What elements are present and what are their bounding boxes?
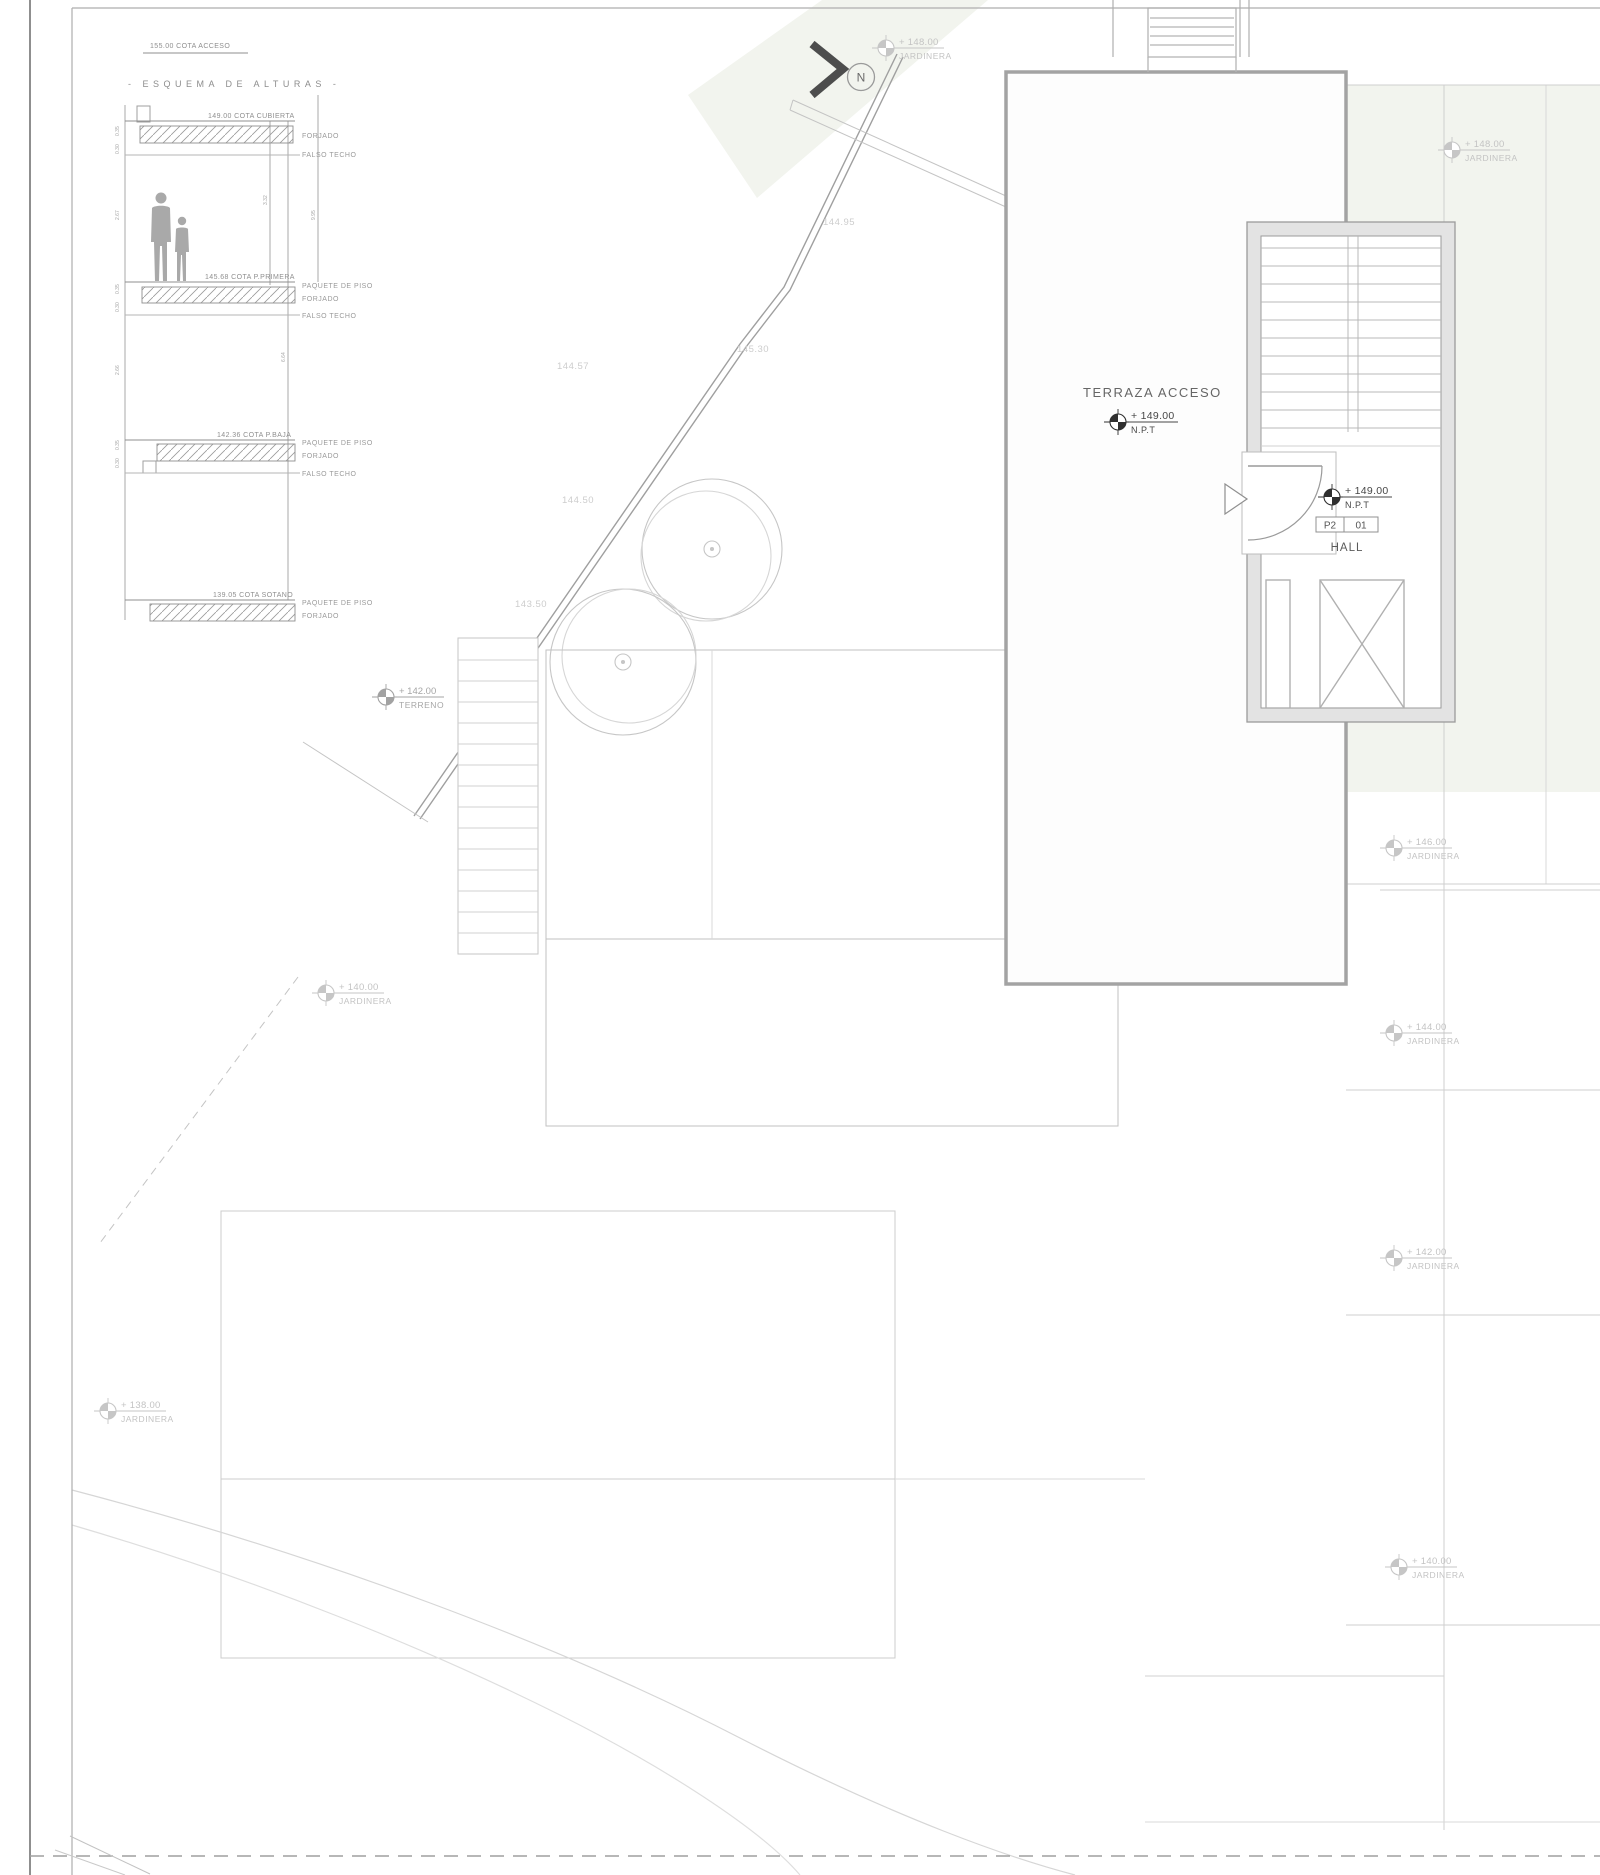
cota-acceso-label: 155.00 COTA ACCESO [150,43,230,50]
contour-label: 144.95 [823,217,855,228]
dim: 2.67 [115,210,121,220]
slab-hatch [150,604,295,621]
jardinera-label: JARDINERA [339,996,392,1006]
jardinera-label: JARDINERA [1407,1036,1460,1046]
dim: 0.35 [115,126,121,136]
room-tag-zone: P2 [1324,521,1337,532]
jardinera-value: + 144.00 [1407,1022,1447,1033]
tag-forjado: FORJADO [302,453,339,460]
jardinera-label: JARDINERA [1465,153,1518,163]
jardinera-value: + 140.00 [339,982,379,993]
jardinera-marker-3: + 146.00 JARDINERA [1380,835,1460,861]
dim: 0.30 [115,458,121,468]
contour-label: 145.30 [737,344,769,355]
slab-notch [143,461,156,473]
terreno-value: + 142.00 [399,686,436,697]
contour-labels: 144.95 145.30 144.57 144.50 143.50 [515,217,855,610]
npt-value: + 149.00 [1131,410,1175,422]
dim: 0.30 [115,144,121,154]
north-entry-stair [1113,0,1249,72]
jardinera-value: + 140.00 [1412,1556,1452,1567]
jardinera-marker-7: + 140.00 JARDINERA [312,980,392,1006]
jardinera-marker-5: + 142.00 JARDINERA [1380,1245,1460,1271]
npt-value: + 149.00 [1345,485,1389,497]
north-label: N [857,71,866,85]
dim: 3.32 [263,195,269,205]
slab-hatch [142,287,295,303]
tag-paquete: PAQUETE DE PISO [302,283,373,290]
jardinera-value: + 138.00 [121,1400,161,1411]
tree-symbols [550,479,782,735]
jardinera-label: JARDINERA [899,51,952,61]
npt-datum: N.P.T [1131,425,1155,435]
room-tag-number: 01 [1355,521,1367,532]
lower-building-outline [221,1211,1444,1676]
jardinera-value: + 148.00 [1465,139,1505,150]
tag-falso-techo: FALSO TECHO [302,152,356,159]
jardinera-marker-4: + 144.00 JARDINERA [1380,1020,1460,1046]
tag-paquete: PAQUETE DE PISO [302,440,373,447]
jardinera-marker-8: + 138.00 JARDINERA [94,1398,174,1424]
architectural-plan-sheet: 144.95 145.30 144.57 144.50 143.50 [0,0,1600,1875]
cota-cubierta: 149.00 COTA CUBIERTA [208,113,295,120]
terrain-contour-curves [72,1490,1075,1875]
room-name-label: HALL [1331,542,1364,554]
tag-falso-techo: FALSO TECHO [302,471,356,478]
slab-hatch [157,444,295,461]
npt-datum: N.P.T [1345,500,1369,510]
dim: 6.64 [281,352,287,362]
jardinera-marker-6: + 140.00 JARDINERA [1385,1554,1465,1580]
cota-primera: 145.68 COTA P.PRIMERA [205,274,295,281]
tag-forjado: FORJADO [302,133,339,140]
jardinera-label: JARDINERA [121,1414,174,1424]
esquema-vertical-lines [125,95,318,620]
tag-falso-techo: FALSO TECHO [302,313,356,320]
stair-core [1225,222,1455,722]
jardinera-label: JARDINERA [1407,1261,1460,1271]
cota-sotano: 139.05 COTA SOTANO [213,592,293,599]
jardinera-value: + 148.00 [899,37,939,48]
jardinera-label: JARDINERA [1412,1570,1465,1580]
tag-paquete: PAQUETE DE PISO [302,600,373,607]
jardinera-value: + 146.00 [1407,837,1447,848]
dim: 0.35 [115,284,121,294]
tag-forjado: FORJADO [302,296,339,303]
jardinera-label: JARDINERA [1407,851,1460,861]
jardinera-value: + 142.00 [1407,1247,1447,1258]
dim: 2.66 [115,365,121,375]
entry-door [1242,452,1336,554]
contour-label: 144.57 [557,361,589,372]
esquema-de-alturas: 155.00 COTA ACCESO - ESQUEMA DE ALTURAS … [115,43,373,621]
cota-baja: 142.36 COTA P.BAJA [217,432,291,439]
plan-drawing: 144.95 145.30 144.57 144.50 143.50 [0,0,1600,1875]
terraza-acceso-label: TERRAZA ACCESO [1083,385,1222,400]
dim: 0.35 [115,440,121,450]
slab-hatch [140,126,293,143]
contour-label: 144.50 [562,495,594,506]
esquema-title: - ESQUEMA DE ALTURAS - [128,79,340,89]
scale-figures [151,193,189,282]
boundary-wall [100,100,1006,1243]
exterior-stair [458,638,538,954]
contour-label: 143.50 [515,599,547,610]
tag-forjado: FORJADO [302,613,339,620]
terreno-marker: + 142.00 TERRENO [372,684,444,710]
terreno-label: TERRENO [399,700,444,710]
parapet [137,106,150,122]
dim: 9.95 [311,210,317,220]
elevator-shaft [1266,580,1404,708]
dim: 0.30 [115,302,121,312]
